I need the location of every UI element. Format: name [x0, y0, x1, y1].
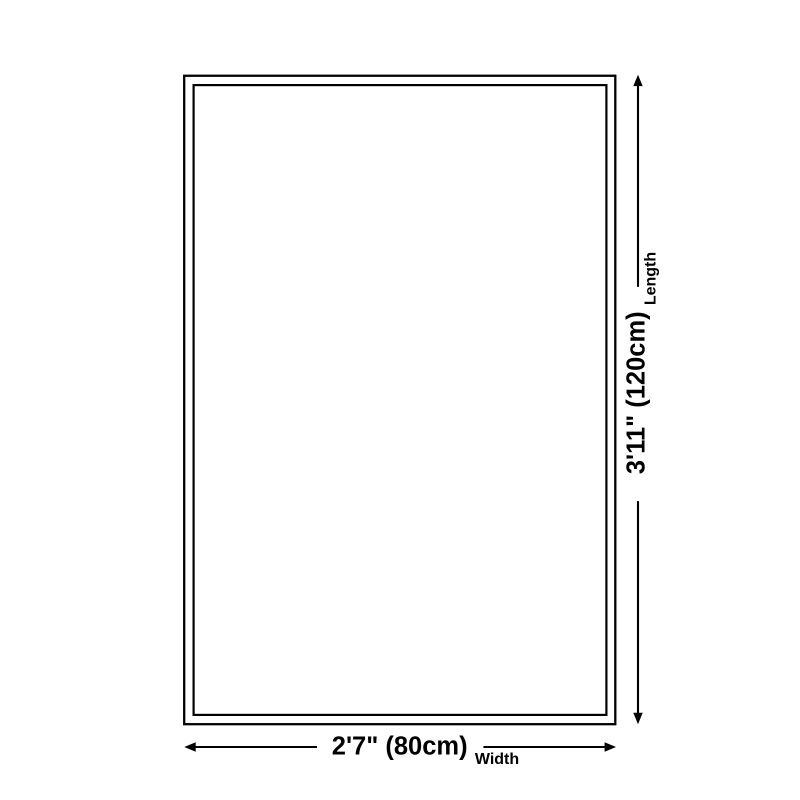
svg-text:3'11" (120cm): 3'11" (120cm) [622, 311, 650, 474]
svg-text:Length: Length [643, 252, 660, 305]
svg-text:Width: Width [475, 751, 519, 768]
svg-text:2'7" (80cm): 2'7" (80cm) [332, 732, 468, 760]
